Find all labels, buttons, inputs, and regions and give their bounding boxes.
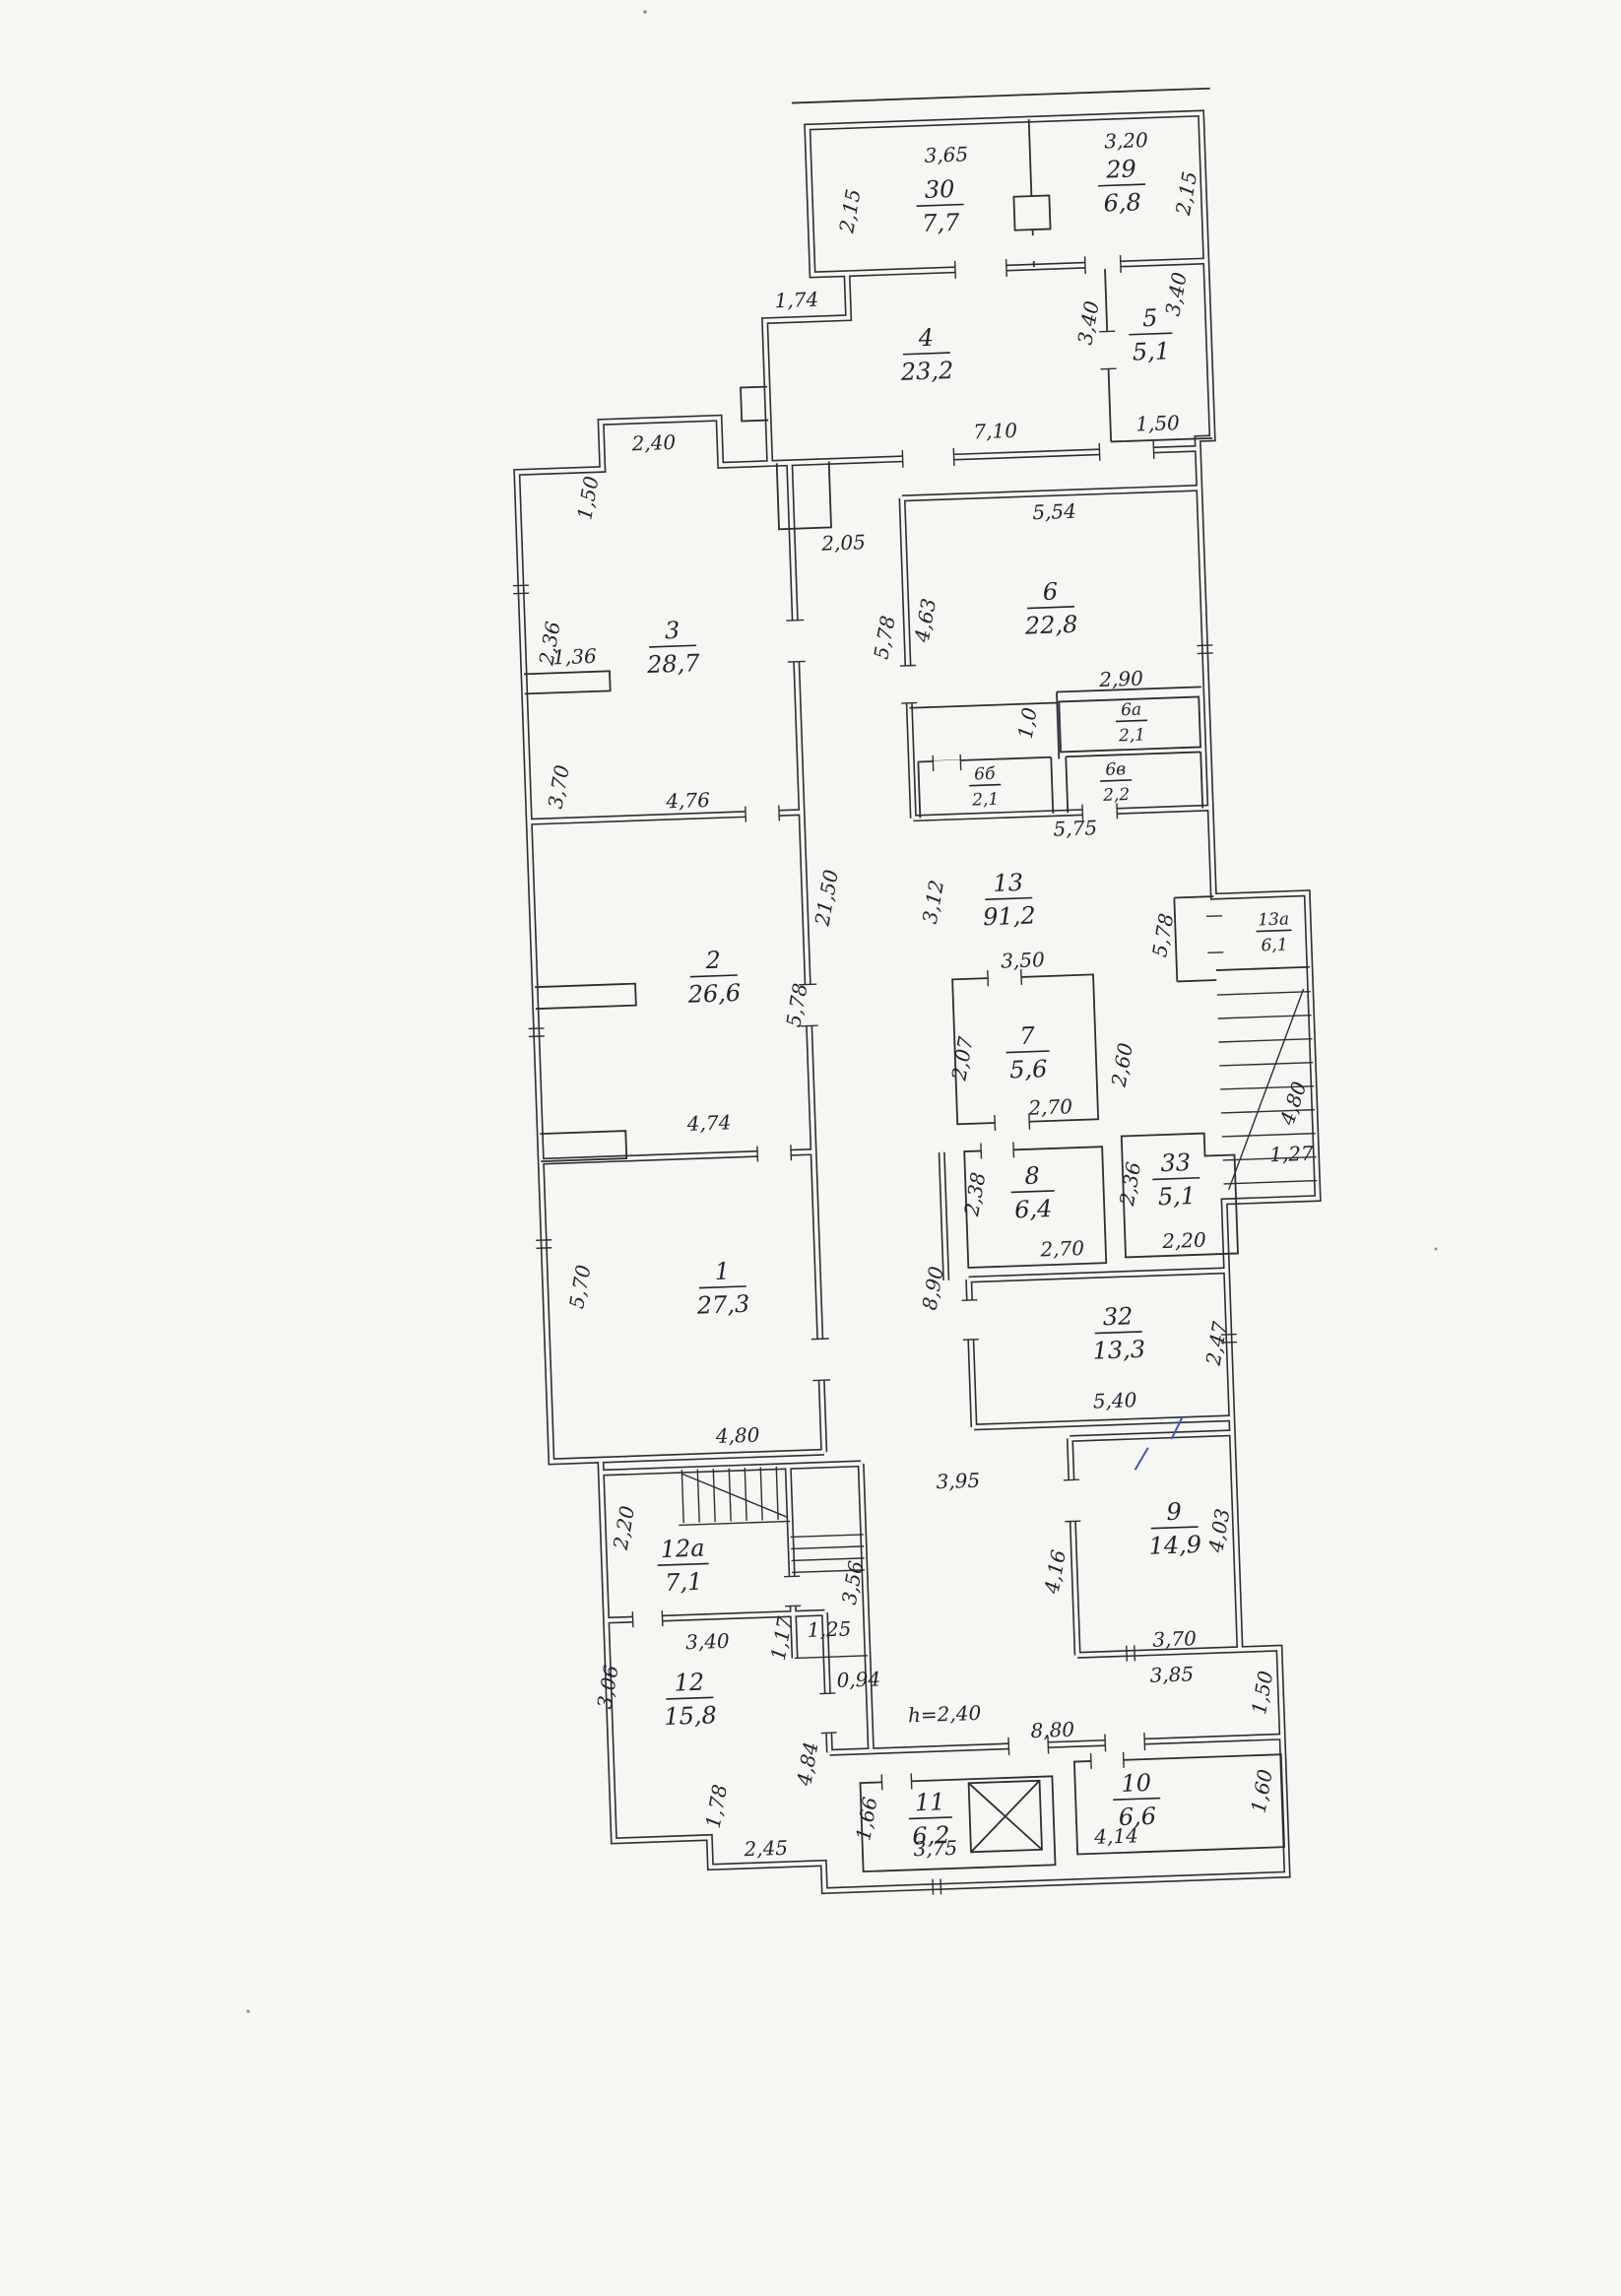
room-number: 2 — [704, 947, 721, 975]
room-number: 13а — [1258, 909, 1289, 930]
room-area: 15,8 — [664, 1701, 717, 1731]
dim-label: 1,50 — [1247, 1669, 1277, 1716]
fraction-line — [1152, 1178, 1200, 1180]
dim-label: 2,05 — [820, 530, 866, 556]
dim-label: 1,50 — [1135, 411, 1181, 436]
scan-speck — [1435, 1248, 1438, 1251]
fraction-line — [1006, 1051, 1050, 1053]
dim-label: 2,38 — [959, 1170, 991, 1218]
dim-label: 2,20 — [609, 1504, 640, 1552]
dim-label: 2,15 — [834, 187, 866, 235]
room-area: 23,2 — [899, 357, 953, 386]
dim-label: 3,40 — [1072, 298, 1103, 346]
room-label-7: 7 5,6 — [1005, 1021, 1051, 1083]
dim-label: 3,85 — [1149, 1662, 1194, 1687]
room-area: 5,1 — [1132, 337, 1170, 365]
room-label-29: 29 6,8 — [1097, 155, 1146, 218]
dim-label: 1,60 — [1247, 1767, 1277, 1814]
room-area: 27,3 — [695, 1290, 749, 1320]
fraction-line — [666, 1697, 713, 1699]
fraction-line — [1129, 333, 1172, 335]
room-number: 6б — [974, 764, 997, 785]
fraction-line — [903, 353, 950, 355]
scan-speck — [643, 10, 647, 14]
dim-label: 4,63 — [910, 597, 941, 645]
ceiling-height-note: h=2,40 — [908, 1701, 982, 1728]
room-label-12a: 12а 7,1 — [657, 1534, 710, 1597]
dim-label: 3,70 — [1152, 1626, 1198, 1652]
room-label-33: 33 5,1 — [1151, 1148, 1200, 1212]
dim-label: 4,14 — [1093, 1823, 1138, 1849]
door-openings-partitions — [828, 233, 1157, 1783]
dim-label: 4,74 — [685, 1110, 731, 1136]
room-number: 6а — [1121, 700, 1142, 721]
fraction-line — [699, 1286, 746, 1288]
room-number: 4 — [917, 324, 934, 353]
fraction-line — [1098, 184, 1145, 186]
dim-label: 3,95 — [936, 1469, 980, 1494]
dim-label: 1,25 — [807, 1616, 851, 1642]
dim-label: 1,36 — [552, 644, 598, 670]
room-label-1: 1 27,3 — [694, 1257, 750, 1320]
dim-label: 2,45 — [743, 1836, 788, 1862]
room-number: 6 — [1042, 577, 1058, 606]
fraction-line — [690, 975, 738, 977]
room-label-6: 6 22,8 — [1022, 577, 1078, 640]
partition-walls — [504, 86, 1340, 1881]
room-number: 10 — [1121, 1769, 1152, 1798]
room-area: 2,1 — [1118, 725, 1146, 746]
scan-speck — [246, 2009, 249, 2012]
room-label-6b: 6б 2,1 — [969, 764, 1003, 811]
room-label-12: 12 15,8 — [663, 1668, 718, 1731]
room-label-6a: 6а 2,1 — [1115, 699, 1148, 746]
room-number: 13 — [993, 869, 1024, 897]
dim-label: 3,20 — [1104, 128, 1149, 154]
room-area: 7,7 — [922, 209, 961, 237]
dim-label: 3,40 — [1160, 270, 1191, 317]
fraction-line — [649, 645, 696, 647]
room-label-10: 10 6,6 — [1112, 1769, 1161, 1832]
dim-label: 2,15 — [1171, 169, 1202, 218]
room-area: 6,1 — [1261, 935, 1288, 955]
room-label-3: 3 28,7 — [644, 616, 700, 679]
dim-label: 2,40 — [630, 430, 677, 456]
room-label-30: 30 7,7 — [916, 175, 965, 238]
room-number: 7 — [1019, 1021, 1036, 1050]
room-area: 22,8 — [1023, 611, 1077, 640]
fraction-line — [1011, 1191, 1055, 1193]
dim-label: 5,70 — [564, 1263, 595, 1310]
dim-label: 3,40 — [685, 1629, 731, 1655]
room-area: 13,3 — [1092, 1336, 1145, 1365]
dim-label: 4,80 — [1275, 1079, 1312, 1129]
room-number: 32 — [1102, 1302, 1134, 1331]
room-area: 14,9 — [1148, 1531, 1201, 1560]
room-area: 28,7 — [646, 649, 701, 679]
dim-label: 1,50 — [572, 474, 603, 521]
fraction-line — [985, 898, 1032, 900]
dim-label: 2,20 — [1161, 1228, 1207, 1254]
floor-plan-drawing: 30 7,7 29 6,8 4 23,2 5 5,1 3 28,7 6 22,8 — [0, 0, 1621, 2296]
floor-plan: 30 7,7 29 6,8 4 23,2 5 5,1 3 28,7 6 22,8 — [496, 86, 1341, 1908]
dim-label: 3,65 — [924, 142, 968, 167]
dim-label: 21,50 — [810, 868, 843, 929]
dim-label: 5,54 — [1032, 499, 1076, 525]
dim-label: 3,75 — [913, 1836, 957, 1862]
dim-label: 7,10 — [973, 419, 1018, 444]
dim-label: 5,75 — [1053, 816, 1097, 841]
room-area: 6,8 — [1103, 188, 1141, 217]
room-number: 33 — [1160, 1148, 1192, 1177]
room-label-13: 13 91,2 — [982, 868, 1037, 931]
room-number: 8 — [1024, 1161, 1040, 1190]
dim-label: 2,70 — [1027, 1094, 1073, 1120]
fraction-line — [909, 1817, 952, 1819]
dim-label: 3,12 — [918, 879, 948, 926]
room-label-8: 8 6,4 — [1010, 1161, 1056, 1223]
fraction-line — [1257, 930, 1292, 931]
dim-label: 2,90 — [1098, 666, 1144, 691]
fraction-line — [1095, 1332, 1142, 1334]
room-label-4: 4 23,2 — [898, 323, 954, 386]
room-area: 7,1 — [665, 1568, 703, 1597]
fraction-line — [1116, 720, 1147, 721]
room-label-9: 9 14,9 — [1147, 1497, 1202, 1560]
dim-label: 2,36 — [1115, 1159, 1146, 1208]
fraction-line — [1151, 1527, 1199, 1529]
room-number: 12а — [660, 1535, 705, 1564]
dimension-labels: 3,65 2,15 3,20 2,15 1,74 7,10 3,40 3,40 … — [516, 123, 1338, 1872]
dim-label: 1,27 — [1269, 1142, 1315, 1167]
dim-label: 1,78 — [701, 1783, 732, 1830]
dim-label: 5,78 — [869, 614, 899, 661]
dim-label: 3,50 — [1001, 948, 1046, 973]
room-number: 5 — [1142, 304, 1158, 333]
room-area: 2,2 — [1102, 785, 1131, 806]
dim-label: 4,84 — [792, 1740, 823, 1789]
room-number: 30 — [924, 175, 955, 204]
dim-label: 3,70 — [543, 762, 573, 810]
dim-label: 3,06 — [592, 1663, 622, 1710]
dim-label: 1,66 — [851, 1795, 881, 1842]
dim-label: 4,16 — [1039, 1547, 1070, 1596]
dim-label: 2,07 — [946, 1034, 978, 1082]
dim-label: 4,80 — [714, 1423, 760, 1449]
room-number: 3 — [664, 617, 680, 645]
room-area: 5,1 — [1157, 1182, 1196, 1211]
dim-label: 1,0 — [1013, 705, 1042, 741]
fraction-line — [658, 1563, 709, 1565]
room-label-32: 32 13,3 — [1091, 1302, 1146, 1365]
window-ticks — [513, 561, 1256, 1908]
room-number: 12 — [674, 1669, 705, 1697]
dim-label: 2,60 — [1107, 1041, 1138, 1089]
dim-label: 2,70 — [1039, 1236, 1085, 1262]
dim-label: 5,40 — [1092, 1388, 1137, 1413]
room-number: 1 — [714, 1257, 730, 1285]
fraction-line — [969, 785, 1001, 786]
room-number: 11 — [914, 1788, 945, 1816]
door-jamb-ticks — [586, 252, 1253, 1799]
room-number: 29 — [1105, 155, 1137, 183]
fraction-line — [1113, 1799, 1160, 1801]
dim-label: 0,94 — [836, 1667, 880, 1692]
dim-label: 4,03 — [1203, 1507, 1235, 1555]
room-area: 6,4 — [1014, 1195, 1053, 1223]
fraction-line — [1027, 607, 1074, 609]
room-area: 5,6 — [1009, 1055, 1048, 1083]
elevator-shaft — [969, 1781, 1042, 1852]
room-label-13a: 13а 6,1 — [1256, 909, 1293, 955]
dim-label: 8,80 — [1030, 1718, 1075, 1743]
dim-label: 4,76 — [665, 788, 711, 814]
scanned-floor-plan-page: 30 7,7 29 6,8 4 23,2 5 5,1 3 28,7 6 22,8 — [0, 0, 1621, 2296]
stray-pen-mark — [1134, 1417, 1185, 1471]
room-number: 6в — [1105, 759, 1127, 780]
fraction-line — [917, 205, 964, 207]
room-number: 9 — [1166, 1498, 1182, 1527]
room-label-2: 2 26,6 — [685, 946, 742, 1009]
dim-label: 8,90 — [917, 1265, 947, 1312]
room-area: 91,2 — [983, 901, 1036, 931]
fraction-line — [1100, 780, 1132, 781]
dim-label: 1,74 — [774, 288, 818, 313]
room-label-6v: 6в 2,2 — [1099, 759, 1133, 806]
room-area: 26,6 — [686, 979, 741, 1009]
room-area: 2,1 — [971, 790, 1000, 811]
dim-label: 5,78 — [1147, 911, 1178, 958]
